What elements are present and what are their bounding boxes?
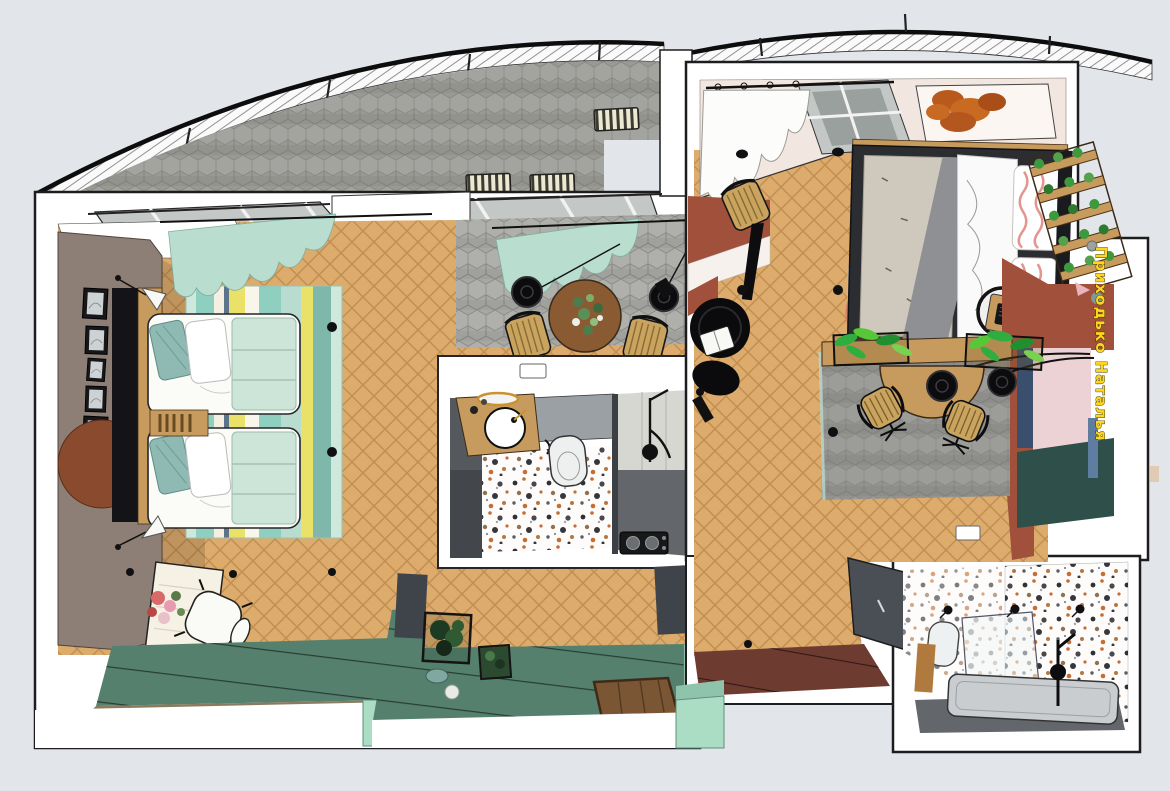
sofa-bed (148, 428, 300, 528)
sofa-bed (148, 314, 300, 414)
entry-door-mat (594, 678, 678, 718)
white-pot (445, 685, 459, 699)
papasan-chair (690, 298, 750, 358)
tv-panel (112, 288, 138, 522)
round-sink (485, 408, 525, 448)
hall-panel (654, 565, 690, 635)
step-cut (676, 696, 724, 748)
cistern-shelf (528, 394, 614, 442)
between-sofa-shelf (150, 410, 208, 436)
watermark-text: Приходько Наталья (1092, 246, 1110, 441)
pendant-lamp (988, 368, 1016, 396)
pendant-lamp (927, 371, 957, 401)
wall-vent (956, 526, 980, 540)
bath-cabinet (914, 643, 935, 692)
wall-art (916, 84, 1056, 142)
floor-plan-render: Приходько Наталья (0, 0, 1170, 791)
washer-unit (620, 532, 668, 554)
lounger-chair (594, 108, 639, 131)
pendant-lamp (512, 277, 542, 307)
bathtub (947, 674, 1119, 725)
watering-can (426, 669, 448, 683)
wall-vent (520, 364, 546, 378)
right-apartment-block: Приходько Наталья (676, 62, 1148, 752)
mural-teal (1017, 438, 1114, 528)
bathroom (438, 356, 692, 568)
hall-panel (394, 573, 427, 638)
pillow (1012, 165, 1060, 250)
bathroom-2 (903, 562, 1128, 733)
toilet (547, 434, 588, 487)
stray-mark (1150, 466, 1159, 482)
shower-partition (612, 394, 618, 554)
floor-plan-screenshot: Приходько Наталья (0, 0, 1170, 791)
